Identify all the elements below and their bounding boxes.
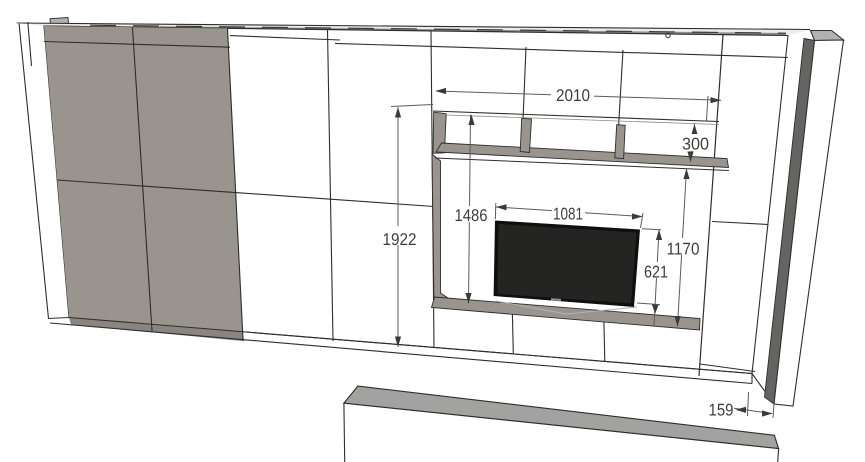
svg-text:1170: 1170 [667, 240, 700, 259]
svg-text:2010: 2010 [556, 86, 590, 105]
svg-text:621: 621 [644, 263, 668, 282]
svg-text:1486: 1486 [455, 206, 488, 225]
svg-text:300: 300 [682, 135, 709, 154]
svg-text:1922: 1922 [383, 230, 417, 249]
svg-text:159: 159 [709, 401, 734, 420]
svg-text:1081: 1081 [553, 205, 583, 224]
